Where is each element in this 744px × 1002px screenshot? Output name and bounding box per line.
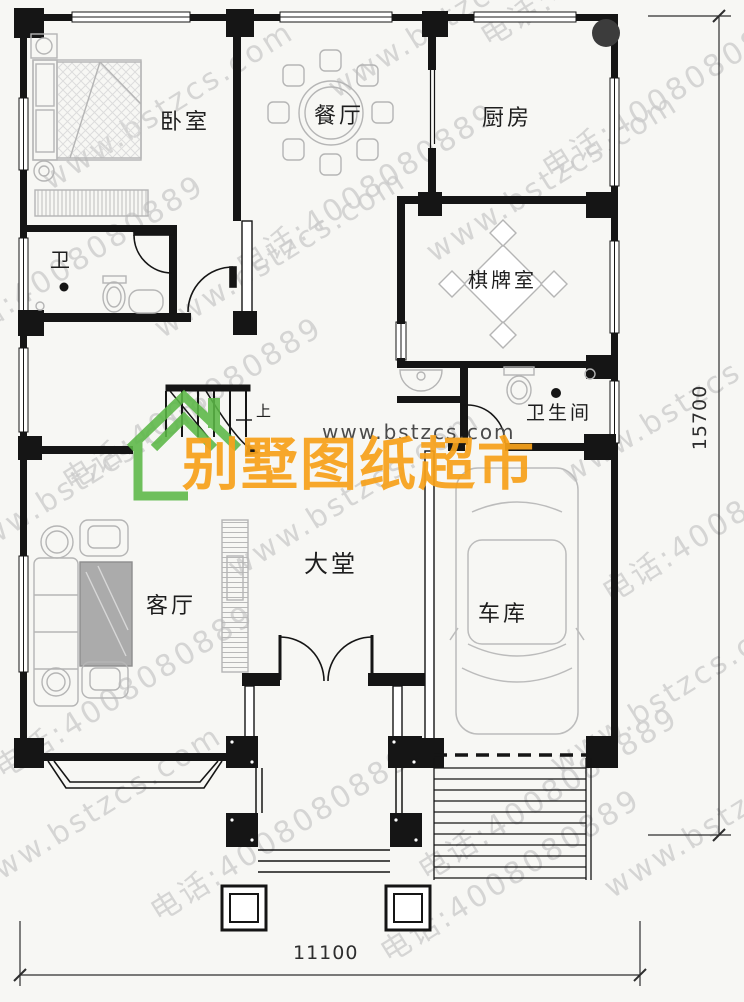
porch-steps	[256, 768, 402, 872]
porch-column-bases	[222, 886, 430, 930]
floor-plan-drawing	[0, 0, 744, 1002]
bed	[33, 60, 141, 160]
partition-walls	[242, 221, 434, 739]
garage-ramp	[434, 758, 591, 880]
bay-window	[48, 761, 222, 788]
doors	[134, 228, 505, 681]
toilet-small-bath	[36, 276, 163, 313]
sofa-set	[34, 520, 248, 706]
car	[450, 468, 584, 734]
floor-plan-page: www.bstzcs.com 电话:4008080889 www.bstzcs.…	[0, 0, 744, 1002]
dining-table	[268, 50, 393, 175]
staircase	[166, 385, 259, 456]
sliding-door-kitchen	[431, 66, 435, 148]
chess-table	[439, 220, 567, 348]
